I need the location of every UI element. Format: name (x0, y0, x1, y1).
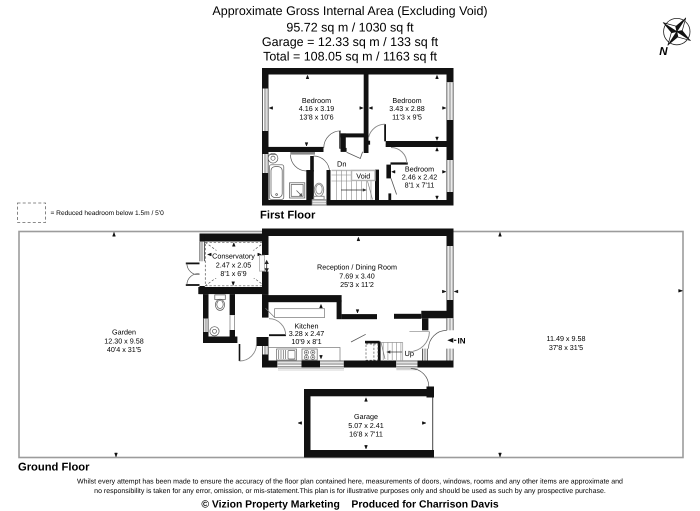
svg-text:N: N (659, 46, 668, 58)
svg-text:40'4 x 31'5: 40'4 x 31'5 (107, 345, 141, 354)
svg-text:First Floor: First Floor (260, 210, 316, 222)
svg-text:Approximate Gross Internal Are: Approximate Gross Internal Area (Excludi… (212, 4, 487, 18)
svg-text:10'9 x 8'1: 10'9 x 8'1 (291, 337, 321, 346)
svg-text:Up: Up (405, 349, 414, 358)
svg-text:25'3 x 11'2: 25'3 x 11'2 (340, 280, 374, 289)
svg-text:no responsibility is taken for: no responsibility is taken for any error… (94, 487, 606, 495)
svg-text:Garage = 12.33 sq m / 133 sq f: Garage = 12.33 sq m / 133 sq ft (262, 35, 439, 49)
svg-text:Garden: Garden (112, 327, 136, 336)
svg-text:Total = 108.05 sq m / 1163 sq: Total = 108.05 sq m / 1163 sq ft (263, 49, 437, 63)
svg-text:Ground Floor: Ground Floor (18, 462, 90, 474)
svg-text:Whilst every attempt has been: Whilst every attempt has been made to en… (77, 478, 623, 486)
svg-text:16'8 x 7'11: 16'8 x 7'11 (349, 429, 383, 438)
svg-text:8'1 x 7'11: 8'1 x 7'11 (405, 181, 435, 190)
svg-text:© Vizion Property Marketing: © Vizion Property Marketing Produced for… (201, 500, 499, 511)
svg-text:95.72 sq m / 1030 sq ft: 95.72 sq m / 1030 sq ft (286, 20, 414, 34)
svg-text:Conservatory: Conservatory (212, 252, 255, 261)
svg-text:= Reduced headroom below 1.5m: = Reduced headroom below 1.5m / 5'0 (51, 210, 165, 217)
svg-text:8'1 x 6'9: 8'1 x 6'9 (220, 269, 246, 278)
svg-text:11.49 x 9.58: 11.49 x 9.58 (546, 334, 585, 343)
svg-text:Garage: Garage (354, 412, 378, 421)
svg-text:11'3 x 9'5: 11'3 x 9'5 (392, 112, 422, 121)
svg-text:13'8 x 10'6: 13'8 x 10'6 (299, 112, 333, 121)
svg-text:Void: Void (356, 171, 370, 180)
svg-text:Dn: Dn (337, 160, 346, 169)
svg-text:37'8 x 31'5: 37'8 x 31'5 (549, 343, 583, 352)
svg-text:IN: IN (458, 336, 466, 345)
svg-text:Reception / Dining Room: Reception / Dining Room (317, 262, 397, 271)
